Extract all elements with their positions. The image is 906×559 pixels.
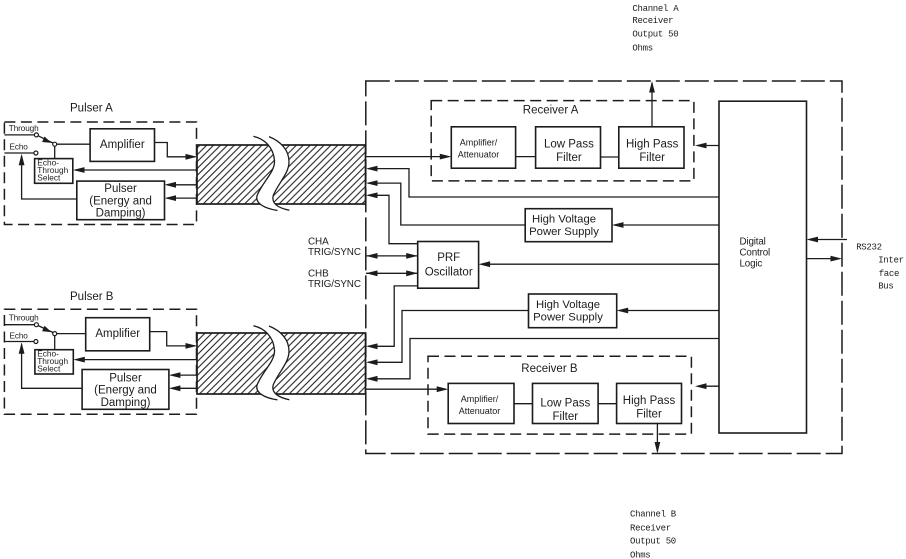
svg-text:Channel A: Channel A — [632, 4, 679, 14]
svg-text:Inter: Inter — [878, 256, 904, 266]
svg-text:High Voltage: High Voltage — [536, 299, 600, 311]
svg-text:Amplifier: Amplifier — [95, 328, 140, 340]
svg-text:RS232: RS232 — [856, 242, 882, 252]
svg-text:Filter: Filter — [553, 411, 579, 423]
svg-text:PRF: PRF — [437, 252, 460, 264]
svg-text:Ohms: Ohms — [630, 550, 650, 559]
svg-text:Digital: Digital — [740, 236, 766, 247]
svg-text:Through: Through — [9, 124, 39, 133]
svg-text:Receiver: Receiver — [632, 16, 673, 26]
svg-text:Receiver B: Receiver B — [521, 363, 578, 375]
svg-text:Receiver: Receiver — [630, 523, 671, 533]
svg-text:Bus: Bus — [878, 282, 893, 292]
svg-text:High Pass: High Pass — [623, 395, 676, 407]
svg-text:TRIG/SYNC: TRIG/SYNC — [308, 247, 361, 258]
svg-text:CHB: CHB — [308, 268, 329, 279]
svg-text:(Energy and: (Energy and — [94, 385, 157, 397]
svg-text:Select: Select — [37, 363, 61, 373]
svg-text:Echo: Echo — [10, 143, 29, 152]
svg-text:Low Pass: Low Pass — [540, 397, 590, 409]
svg-text:(Energy and: (Energy and — [89, 195, 152, 207]
svg-text:Pulser A: Pulser A — [70, 103, 113, 115]
svg-text:Pulser: Pulser — [109, 372, 142, 384]
svg-text:Pulser: Pulser — [104, 183, 137, 195]
svg-text:Select: Select — [37, 173, 61, 183]
svg-text:Pulser B: Pulser B — [70, 291, 114, 303]
svg-text:face: face — [879, 269, 899, 279]
svg-text:Control: Control — [740, 247, 771, 258]
svg-text:Receiver A: Receiver A — [523, 104, 579, 116]
svg-text:Power Supply: Power Supply — [533, 312, 603, 324]
svg-text:Attenuator: Attenuator — [458, 149, 500, 159]
svg-text:Echo: Echo — [10, 332, 29, 341]
svg-text:Through: Through — [9, 314, 39, 323]
svg-text:Amplifier: Amplifier — [100, 139, 145, 151]
svg-text:Oscillator: Oscillator — [425, 267, 473, 279]
svg-text:Filter: Filter — [636, 408, 662, 420]
svg-text:Amplifier/: Amplifier/ — [461, 394, 499, 404]
svg-text:Attenuator: Attenuator — [459, 406, 501, 416]
svg-text:Logic: Logic — [740, 258, 763, 269]
svg-text:TRIG/SYNC: TRIG/SYNC — [308, 279, 361, 290]
svg-text:High Voltage: High Voltage — [532, 213, 596, 225]
svg-text:Amplifier/: Amplifier/ — [460, 137, 498, 147]
svg-text:Filter: Filter — [556, 152, 582, 164]
svg-text:Filter: Filter — [639, 152, 665, 164]
svg-text:Damping): Damping) — [101, 397, 151, 409]
svg-text:Low Pass: Low Pass — [544, 139, 594, 151]
svg-text:Channel B: Channel B — [630, 510, 677, 520]
svg-text:Output 50: Output 50 — [630, 537, 676, 547]
svg-text:Output 50: Output 50 — [632, 29, 678, 39]
svg-text:CHA: CHA — [308, 236, 329, 247]
svg-text:High Pass: High Pass — [626, 139, 679, 151]
svg-text:Power Supply: Power Supply — [529, 226, 599, 238]
svg-text:Damping): Damping) — [96, 208, 146, 220]
svg-text:Ohms: Ohms — [632, 43, 652, 53]
